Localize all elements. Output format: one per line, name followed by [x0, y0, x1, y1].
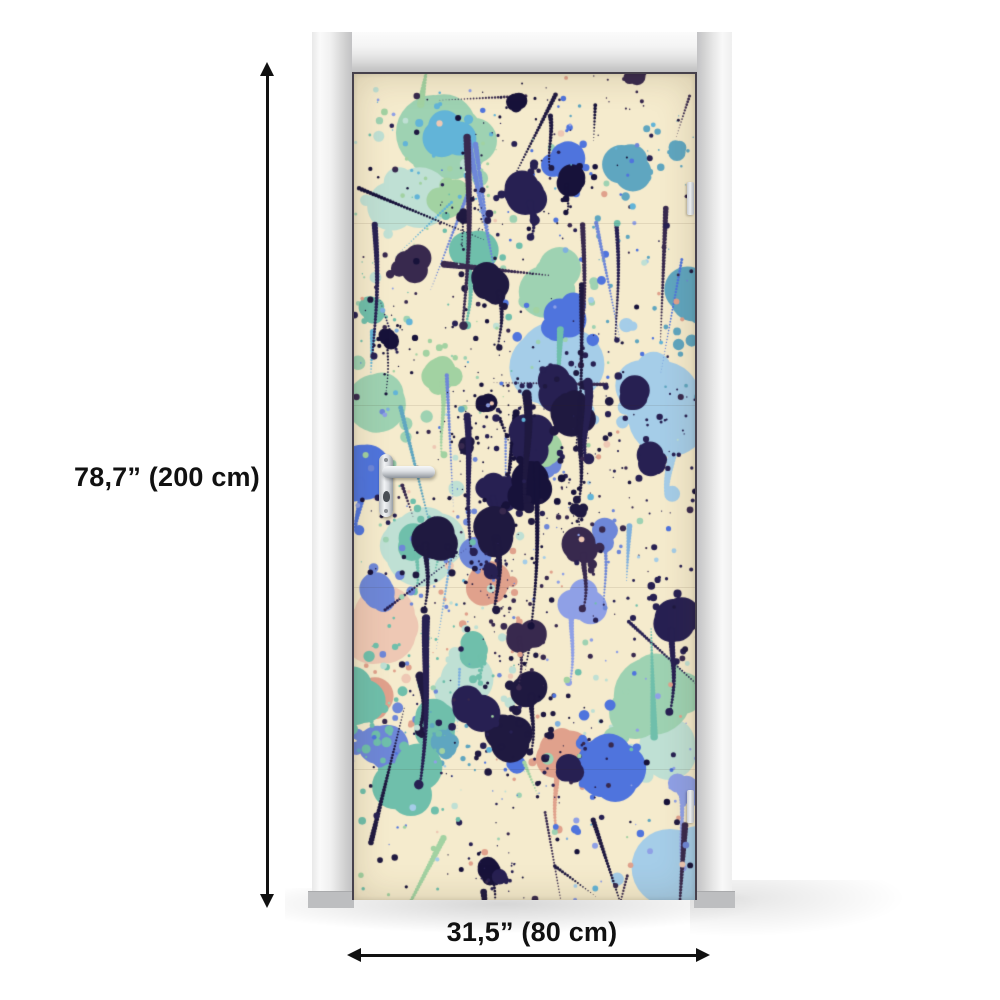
- door-hinge-bottom: [687, 790, 694, 823]
- mural-seam: [354, 769, 695, 770]
- door-frame-head: [312, 32, 732, 72]
- mural-seam: [354, 223, 695, 224]
- door-handle-keyhole: [383, 491, 390, 502]
- width-dimension-arrow: [360, 954, 697, 957]
- door-handle-backplate: [379, 454, 393, 517]
- splatter-mural: [354, 74, 695, 900]
- door-frame-jamb-left: [312, 32, 352, 905]
- height-dimension-label: 78,7” (200 cm): [52, 462, 282, 493]
- door-handle-lever: [382, 466, 435, 478]
- door-hinge-top: [687, 182, 694, 215]
- width-dimension-label: 31,5” (80 cm): [382, 917, 682, 948]
- handle-screw-top: [384, 458, 388, 462]
- mural-seam: [354, 405, 695, 406]
- door-leaf: [352, 72, 697, 900]
- door-frame-foot-left: [308, 891, 354, 908]
- mural-seam: [354, 587, 695, 588]
- product-scene: 78,7” (200 cm) 31,5” (80 cm): [0, 0, 1000, 1000]
- door-frame-foot-right: [694, 891, 735, 908]
- handle-screw-bottom: [384, 509, 388, 513]
- door-frame-jamb-right: [697, 32, 732, 905]
